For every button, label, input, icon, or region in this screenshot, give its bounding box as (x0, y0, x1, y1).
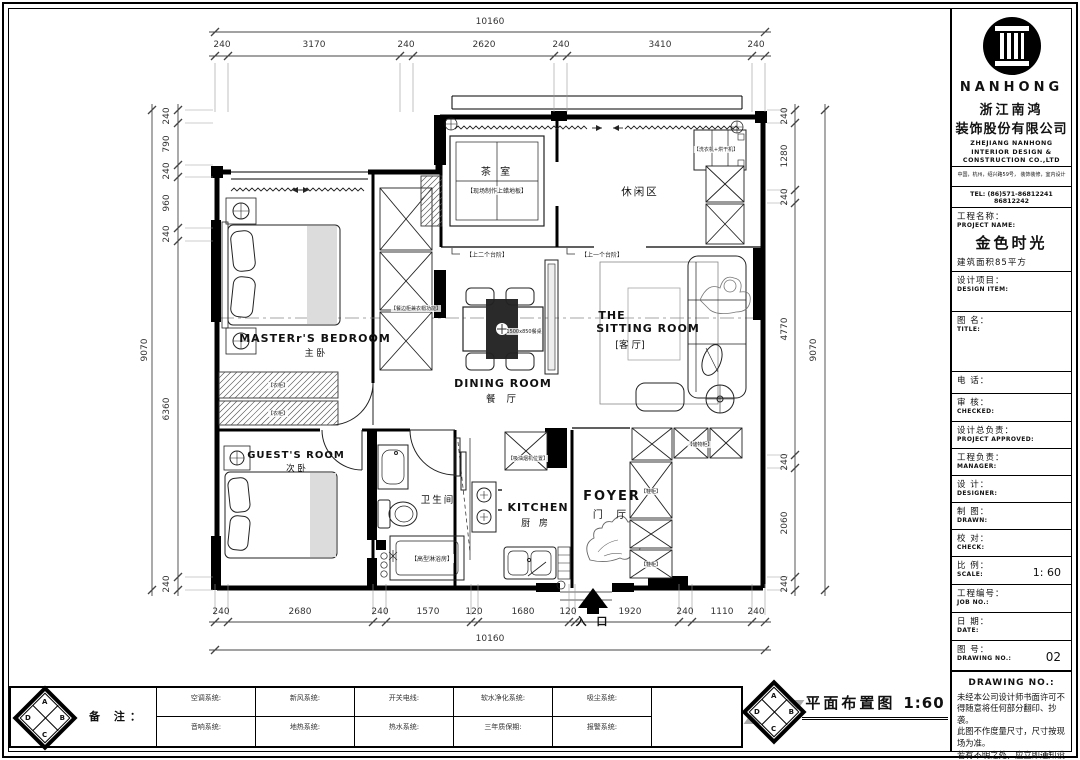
table-cell: 开关电线: (355, 688, 454, 717)
room-label-bath: 卫生间 (421, 492, 456, 506)
dim-label: 240 (780, 453, 790, 470)
note-laundry: 【洗衣机+烘干机】 (694, 146, 738, 153)
sink-icon (378, 445, 408, 489)
company-name-en: ZHEJIANG NANHONG INTERIOR DESIGN & CONST… (963, 140, 1060, 166)
company-tel: TEL: (86)571-86812241 86812242 (952, 186, 1071, 207)
dim-label: 960 (162, 194, 172, 211)
dim-label: 240 (747, 607, 764, 617)
room-label-master-en: MASTERr'S BEDROOM (239, 332, 391, 345)
tb-drawn: 制 图： DRAWN: (952, 502, 1071, 529)
room-label-dining-cn: 餐 厅 (486, 391, 520, 405)
scale-value: 1: 60 (1033, 566, 1061, 579)
dim-label: 4770 (780, 318, 790, 341)
table-cell: 报警系统: (553, 717, 652, 746)
dim-overall-bottom: 10160 (476, 634, 505, 644)
door-arcs (322, 383, 466, 490)
table-cell: 软水净化系统: (454, 688, 553, 717)
tb-approved: 设计总负责： PROJECT APPROVED: (952, 421, 1071, 448)
note-shower: 【高型淋浴房】 (410, 554, 454, 563)
disclaimer: 未经本公司设计师书面许可不得随意将任何部分翻印、抄袭。 此图不作度量尺寸，尺寸按… (957, 692, 1066, 760)
tb-design-item: 设计项目： DESIGN ITEM: (952, 271, 1071, 311)
tb-check: 校 对： CHECK: (952, 529, 1071, 556)
note-step-left: 【上二个台阶】 (465, 250, 509, 259)
note-tea-floor: 【现场制作上蜡地板】 (466, 186, 528, 195)
note-shoe-upper: 【鞋柜】 (641, 488, 661, 495)
table-cell: 音响系统: (157, 717, 256, 746)
note-dining-table: 1500x850餐桌 (506, 328, 541, 335)
remark-label: 备 注： (89, 708, 146, 724)
tb-checked: 审 核： CHECKED: (952, 393, 1071, 421)
dim-overall-top: 10160 (476, 17, 505, 27)
table-cell: 新风系统: (256, 688, 355, 717)
systems-table: 空调系统: 新风系统: 开关电线: 软水净化系统: 吸尘系统: 音响系统: 地热… (156, 688, 652, 746)
remarks-box: A B C D 备 注： 空调系统: 新风系统: 开关电线: 软水净化系统: 吸… (9, 686, 743, 748)
note-wardrobe-2: 【衣柜】 (268, 410, 288, 417)
dim-label: 2680 (289, 607, 312, 617)
table-cell: 三年质保期: (454, 717, 553, 746)
dim-label: 240 (397, 40, 414, 50)
project-name: 金色时光 (957, 232, 1066, 253)
note-cabinet: 【餐边柜兼衣帽功能】 (391, 305, 441, 312)
note-hood: 【吸油烟机位置】 (508, 455, 548, 462)
dim-label: 240 (780, 575, 790, 592)
dim-label: 240 (162, 225, 172, 242)
dim-label: 120 (465, 607, 482, 617)
dim-label: 240 (676, 607, 693, 617)
dim-label: 120 (559, 607, 576, 617)
room-label-foyer-cn: 门 厅 (593, 506, 631, 521)
room-label-master-cn: 主 卧 (305, 346, 326, 359)
room-label-kitchen-cn: 厨 房 (521, 516, 551, 529)
tb-designer: 设 计： DESIGNER: (952, 475, 1071, 502)
toilet-icon (378, 500, 390, 528)
dim-label: 790 (162, 135, 172, 152)
dim-label: 3410 (649, 40, 672, 50)
nanhong-logo-icon (983, 17, 1041, 75)
dim-label: 1680 (512, 607, 535, 617)
tb-tel: 电 话： (952, 371, 1071, 393)
table-cell: 热水系统: (355, 717, 454, 746)
dim-label: 3170 (303, 40, 326, 50)
tb-footer: DRAWING NO.: 未经本公司设计师书面许可不得随意将任何部分翻印、抄袭。… (952, 670, 1071, 760)
tb-date: 日 期： DATE: (952, 612, 1071, 640)
drawing-no-value: 02 (1046, 650, 1061, 664)
cabinet-xboxes (380, 166, 744, 578)
dim-label: 2060 (780, 512, 790, 535)
room-label-tea: 茶 室 (481, 163, 513, 178)
tb-drawing-no: 图 号： DRAWING NO.: 02 (952, 640, 1071, 670)
dim-label: 1110 (711, 607, 734, 617)
table-cell: 空调系统: (157, 688, 256, 717)
dim-label: 240 (162, 575, 172, 592)
compass-icon: A B C D (752, 690, 796, 734)
dim-label: 1280 (780, 145, 790, 168)
dim-label: 240 (780, 188, 790, 205)
dim-label: 240 (552, 40, 569, 50)
window-squiggles (231, 125, 739, 193)
company-address: 中国，杭州，绍兴路59号， 装饰装修，室内设计 (952, 166, 1071, 186)
company-name-cn-2: 装饰股份有限公司 (955, 118, 1067, 137)
tb-title: 图 名： TITLE: (952, 311, 1071, 371)
tb-scale: 比 例： SCALE: 1: 60 (952, 556, 1071, 584)
dim-label: 1570 (417, 607, 440, 617)
room-label-leisure: 休闲区 (621, 184, 659, 199)
note-shoe-lower: 【鞋柜】 (641, 561, 661, 568)
company-name-cn-1: 浙江南鸿 (979, 99, 1043, 118)
tb-manager: 工程负责： MANAGER: (952, 448, 1071, 475)
project-area: 建筑面积85平方 (957, 256, 1066, 268)
dim-label: 240 (780, 107, 790, 124)
brand-name: NANHONG (960, 80, 1063, 95)
dim-label: 6360 (162, 398, 172, 421)
dim-label: 240 (747, 40, 764, 50)
room-label-sitting-cn: [客 厅] (615, 337, 644, 351)
table-cell: 吸尘系统: (553, 688, 652, 717)
dim-label: 1920 (619, 607, 642, 617)
note-storage: 【储物柜】 (687, 441, 712, 448)
note-step-right: 【上一个台阶】 (580, 250, 624, 259)
room-label-sitting-en2: SITTING ROOM (596, 322, 700, 335)
tb-project: 工程名称： PROJECT NAME: 金色时光 建筑面积85平方 (952, 207, 1071, 271)
dim-label: 240 (213, 40, 230, 50)
entry-label: 入 口 (576, 613, 611, 629)
dim-label: 240 (212, 607, 229, 617)
dim-label: 2620 (473, 40, 496, 50)
note-wardrobe-1: 【衣柜】 (268, 382, 288, 389)
room-label-sitting-en1: THE (598, 309, 625, 322)
title-block: NANHONG 浙江南鸿 装饰股份有限公司 ZHEJIANG NANHONG I… (950, 9, 1071, 751)
room-label-guest-en: GUEST'S ROOM (247, 450, 345, 461)
entry-arrow-icon (578, 588, 608, 608)
drawing-sheet: 10160 240 3170 240 2620 240 3410 240 101… (0, 0, 1080, 760)
tb-job: 工程编号： JOB NO.: (952, 584, 1071, 612)
room-label-guest-cn: 次 卧 (286, 462, 306, 474)
dim-overall-right: 9070 (809, 339, 819, 362)
table-cell: 地热系统: (256, 717, 355, 746)
dim-label: 240 (162, 107, 172, 124)
room-label-dining-en: DINING ROOM (454, 377, 552, 390)
room-label-kitchen-en: KITCHEN (507, 501, 568, 514)
room-label-foyer-en: FOYER (583, 489, 641, 504)
dim-label: 240 (371, 607, 388, 617)
company-header: NANHONG 浙江南鸿 装饰股份有限公司 ZHEJIANG NANHONG I… (952, 9, 1071, 166)
compass-icon: A B C D (23, 696, 67, 740)
dim-overall-left: 9070 (140, 339, 150, 362)
dim-label: 240 (162, 162, 172, 179)
drawing-title: 平面布置图1:60 (802, 692, 948, 720)
